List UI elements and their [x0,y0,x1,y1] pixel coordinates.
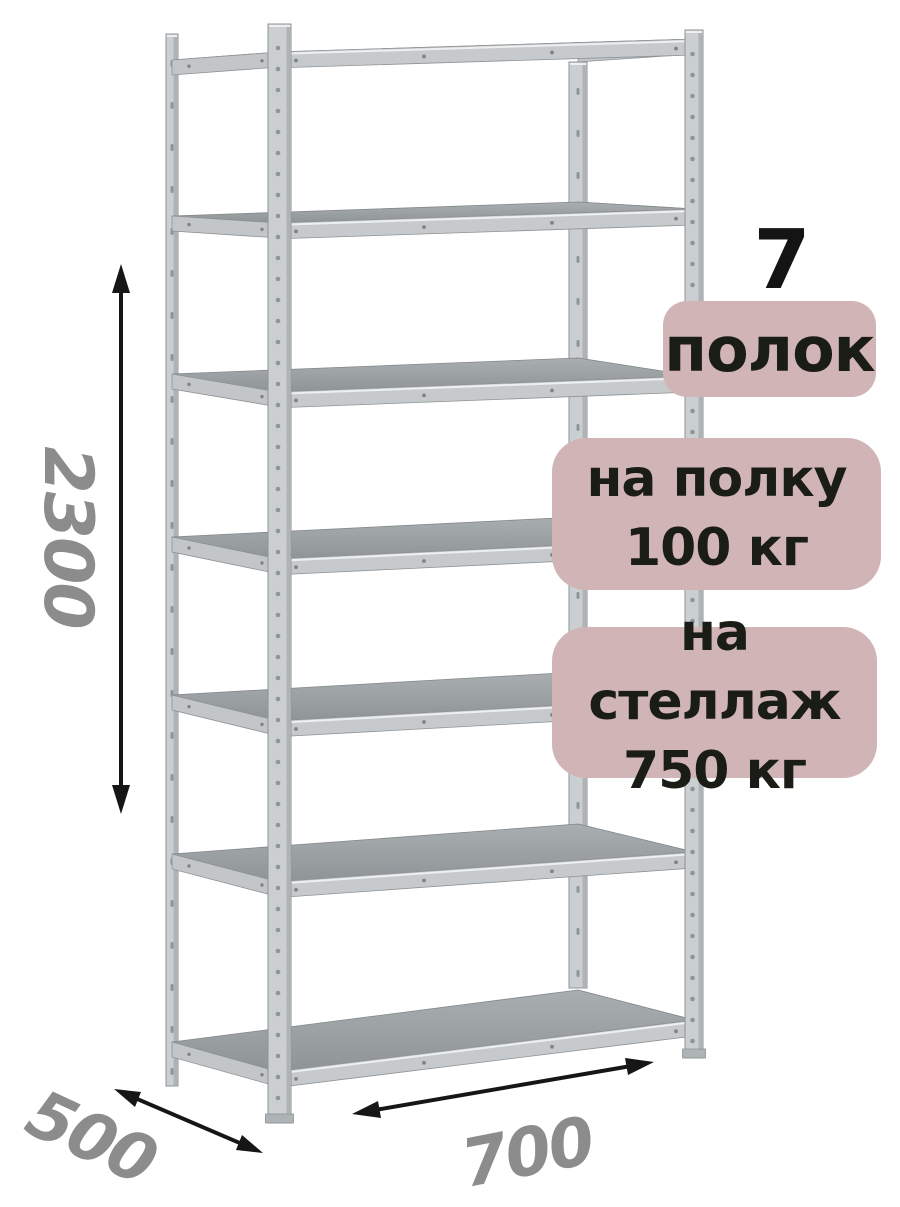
per-rack-load-badge: на стеллаж 750 кг [552,627,877,778]
shelf-count-badge: полок [663,301,876,397]
per-rack-load-label: на стеллаж [552,599,877,737]
left-side-rails [172,52,279,1087]
per-shelf-load-badge: на полку 100 кг [552,438,881,590]
height-dimension-label: 2300 [35,432,99,642]
shelf-count-number: 7 [740,220,824,302]
rack-post-back-left [166,34,178,1086]
height-arrow [112,264,130,814]
shelf-count-badge-label: полок [664,313,875,386]
per-shelf-load-label: на полку [586,445,846,514]
per-shelf-load-value: 100 кг [625,514,808,583]
rack-post-front-left [266,24,294,1123]
per-rack-load-value: 750 кг [623,737,806,806]
product-image: 2300 500 700 7 полок на полку 100 кг на … [0,0,900,1200]
